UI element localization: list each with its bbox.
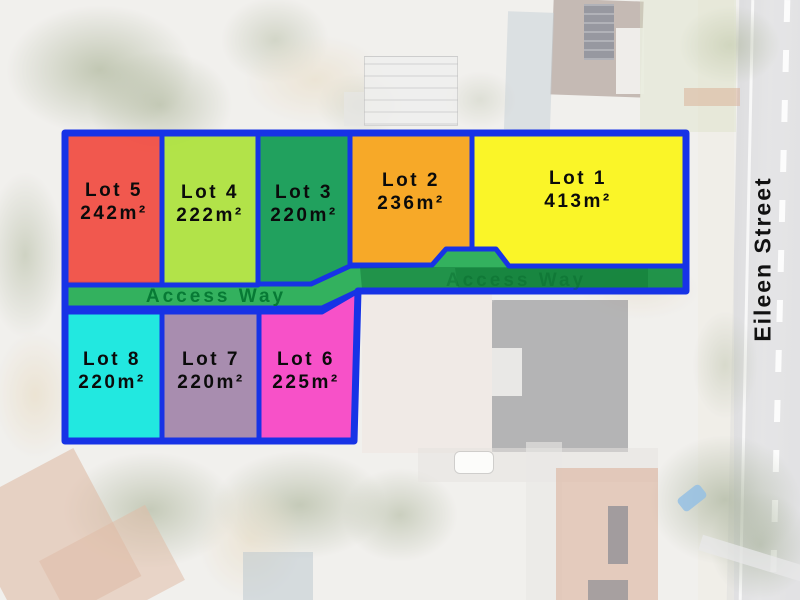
lot-2-label: Lot 2 236m² — [377, 169, 444, 215]
lot-8-label: Lot 8 220m² — [78, 348, 145, 394]
lot-8-name: Lot 8 — [78, 348, 145, 371]
lot-5-name: Lot 5 — [80, 179, 147, 202]
access-way-label-faint: Access Way — [446, 270, 586, 292]
lot-6-label: Lot 6 225m² — [272, 348, 339, 394]
lot-1-name: Lot 1 — [544, 167, 611, 190]
lot-1-label: Lot 1 413m² — [544, 167, 611, 213]
lot-3-name: Lot 3 — [270, 181, 337, 204]
access-way-label: Access Way — [146, 286, 286, 308]
lot-2-area: 236m² — [377, 192, 444, 215]
lot-1-area: 413m² — [544, 190, 611, 213]
lot-4-name: Lot 4 — [176, 181, 243, 204]
lot-4-label: Lot 4 222m² — [176, 181, 243, 227]
street-name-label: Eileen Street — [750, 176, 777, 341]
lot-3-area: 220m² — [270, 204, 337, 227]
lot-5-area: 242m² — [80, 202, 147, 225]
lot-4-area: 222m² — [176, 204, 243, 227]
lot-2-name: Lot 2 — [377, 169, 444, 192]
lot-6-name: Lot 6 — [272, 348, 339, 371]
lot-5-label: Lot 5 242m² — [80, 179, 147, 225]
lot-7-label: Lot 7 220m² — [177, 348, 244, 394]
lot-6-area: 225m² — [272, 371, 339, 394]
subdivision-plan-image: Lot 5 242m² Lot 4 222m² Lot 3 220m² Lot … — [0, 0, 800, 600]
lot-7-area: 220m² — [177, 371, 244, 394]
lot-7-name: Lot 7 — [177, 348, 244, 371]
lot-8-area: 220m² — [78, 371, 145, 394]
lot-3-label: Lot 3 220m² — [270, 181, 337, 227]
lot-boundaries-svg — [0, 0, 800, 600]
